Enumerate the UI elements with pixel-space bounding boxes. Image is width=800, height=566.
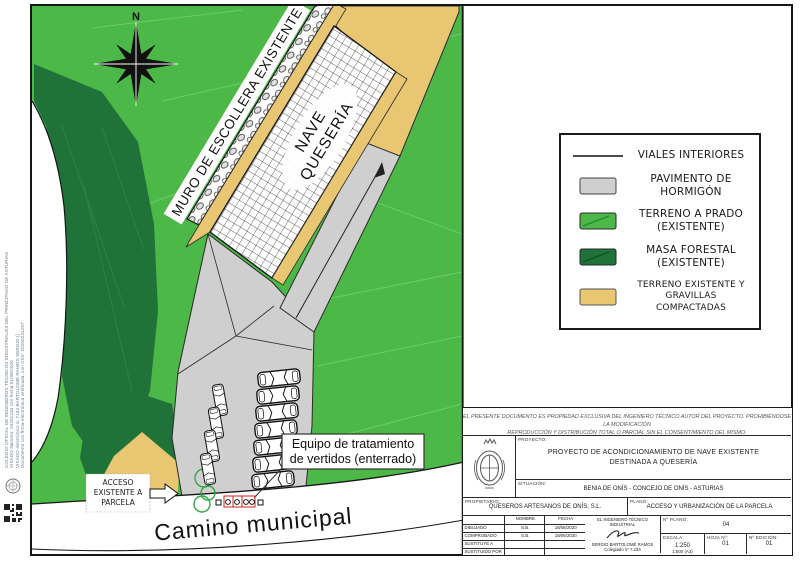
legend: VIALES INTERIORES PAVIMENTO DE HORMIGÓN … — [559, 133, 761, 330]
col-nombre: NOMBRE — [505, 516, 545, 524]
situacion-label: SITUACIÓN: — [518, 481, 546, 486]
legend-label: PAVIMENTO DE — [629, 173, 753, 186]
viales-line-symbol — [567, 149, 629, 163]
legend-item-viales: VIALES INTERIORES — [567, 149, 753, 163]
legend-label: (EXISTENTE) — [629, 221, 753, 234]
proyecto-cell: PROYECTO: PROYECTO DE ACONDICIONAMIENTO … — [516, 436, 791, 480]
edicion-label: Nº EDICIÓN: — [749, 535, 778, 540]
gravillas-swatch — [567, 288, 629, 306]
qr-code-icon — [4, 504, 22, 522]
propietario-value: QUESEROS ARTESANOS DE ONÍS, S.L. — [489, 504, 602, 510]
visado-margin-text: COLEGIO OFICIAL DE INGENIEROS TÉCNICOS I… — [4, 148, 26, 468]
table-row: DIBUJADO S.B. 18/06/2020 — [463, 525, 585, 533]
forestal-swatch — [567, 248, 629, 266]
table-row: SUSTITUYE A — [463, 541, 585, 549]
north-label: N — [132, 11, 140, 23]
legend-item-pavimento: PAVIMENTO DE HORMIGÓN — [567, 173, 753, 199]
college-stamp-icon — [5, 478, 21, 494]
hoja-value: 01 — [722, 541, 729, 547]
visado-line: Documento con firma electrónica verifica… — [20, 148, 25, 468]
plano-cell: PLANO: ACCESO Y URBANIZACIÓN DE LA PARCE… — [628, 498, 791, 516]
legend-item-prado: TERRENO A PRADO (EXISTENTE) — [567, 208, 753, 234]
num-plano-cell: Nº PLANO: 04 — [661, 516, 791, 534]
legend-label: TERRENO EXISTENTE Y — [629, 280, 753, 292]
disclaimer: EL PRESENTE DOCUMENTO ES PROPIEDAD EXCLU… — [463, 408, 791, 436]
col-fecha: FECHA — [545, 516, 585, 524]
escala-value-2: 1:500 (A3) — [672, 549, 693, 554]
proyecto-line-1: PROYECTO DE ACONDICIONAMIENTO DE NAVE EX… — [548, 448, 759, 458]
engineer-number: Colegiado nº 7.234 — [585, 547, 660, 552]
legend-label: VIALES INTERIORES — [629, 149, 753, 162]
legend-item-forestal: MASA FORESTAL (EXISTENTE) — [567, 244, 753, 270]
table-row: COMPROBADO S.B. 18/06/2020 — [463, 533, 585, 541]
num-plano-label: Nº PLANO: — [663, 517, 688, 522]
legend-label: (EXISTENTE) — [629, 257, 753, 270]
title-block: EL PRESENTE DOCUMENTO ES PROPIEDAD EXCLU… — [462, 407, 793, 556]
plano-value: ACCESO Y URBANIZACIÓN DE LA PARCELA — [647, 504, 773, 510]
college-crest-cell — [463, 436, 516, 498]
engineer-title: EL INGENIERO TÉCNICO INDUSTRIAL — [585, 517, 660, 527]
edicion-cell: Nº EDICIÓN: 01 — [747, 534, 791, 554]
legend-label: GRAVILLAS COMPACTADAS — [629, 291, 753, 314]
situacion-cell: SITUACIÓN: BENIA DE ONÍS - CONCEJO DE ON… — [516, 480, 791, 498]
plano-label: PLANO: — [630, 499, 648, 504]
pavimento-swatch — [567, 177, 629, 195]
legend-label: HORMIGÓN — [629, 186, 753, 199]
escala-label: ESCALA: — [663, 535, 684, 540]
legend-item-gravillas: TERRENO EXISTENTE Y GRAVILLAS COMPACTADA… — [567, 280, 753, 315]
signature-icon — [601, 527, 645, 540]
situacion-value: BENIA DE ONÍS - CONCEJO DE ONÍS - ASTURI… — [583, 486, 723, 492]
hoja-label: HOJA Nº: — [707, 535, 728, 540]
acceso-text-1: ACCESO — [103, 478, 134, 487]
acceso-text-2: EXISTENTE A — [94, 488, 143, 497]
revision-header-row: NOMBRE FECHA — [463, 516, 585, 525]
engineer-signature-cell: EL INGENIERO TÉCNICO INDUSTRIAL SERGIO B… — [585, 516, 661, 553]
hoja-cell: HOJA Nº: 01 — [705, 534, 747, 554]
proyecto-line-2: DESTINADA A QUESERÍA — [610, 458, 698, 468]
equipo-text-2: de vertidos (enterrado) — [290, 452, 416, 466]
escala-cell: ESCALA: 1:250 1:500 (A3) — [661, 534, 705, 554]
disclaimer-line-1: EL PRESENTE DOCUMENTO ES PROPIEDAD EXCLU… — [463, 413, 791, 429]
legend-label: TERRENO A PRADO — [629, 208, 753, 221]
propietario-label: PROPIETARIO: — [465, 499, 500, 504]
drawing-sheet: { "colors": { "prado": "#4cb848", "fores… — [0, 0, 800, 566]
site-plan-map: MURO DE ESCOLLERA EXISTENTE NAVE QUESERÍ… — [32, 6, 464, 554]
equipo-text-1: Equipo de tratamiento — [292, 437, 414, 451]
college-crest-icon — [463, 436, 516, 496]
propietario-cell: PROPIETARIO: QUESEROS ARTESANOS DE ONÍS,… — [463, 498, 628, 516]
revision-table: NOMBRE FECHA DIBUJADO S.B. 18/06/2020 CO… — [463, 516, 585, 553]
table-row: SUSTITUIDO POR — [463, 549, 585, 556]
prado-swatch — [567, 212, 629, 230]
num-plano-value: 04 — [723, 522, 730, 528]
proyecto-label: PROYECTO: — [518, 437, 547, 442]
acceso-text-3: PARCELA — [101, 498, 135, 507]
equipo-vertidos-label: Equipo de tratamiento de vertidos (enter… — [282, 434, 424, 469]
edicion-value: 01 — [766, 541, 773, 547]
legend-label: MASA FORESTAL — [629, 244, 753, 257]
